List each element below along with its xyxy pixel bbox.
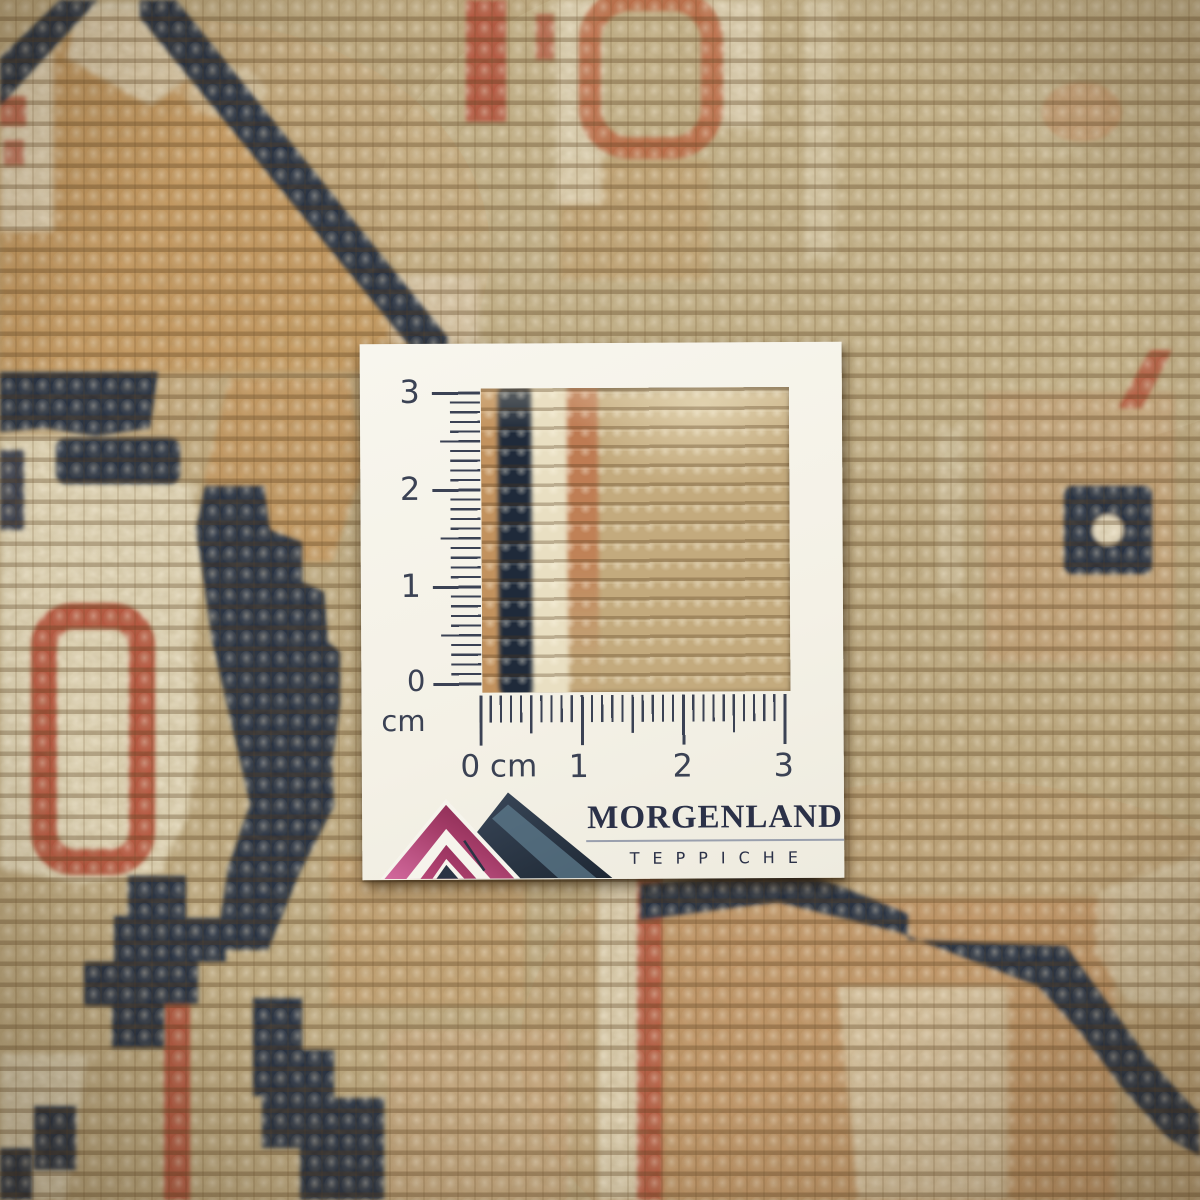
brand-block: MORGENLAND TEPPICHE: [584, 800, 846, 868]
ruler-label: 2: [663, 745, 703, 785]
morgenland-logo-icon: [380, 792, 612, 879]
ruler-label: 1: [559, 746, 599, 786]
brand-name: MORGENLAND: [584, 800, 846, 835]
ruler-label: 3: [764, 745, 804, 785]
brand-subtitle: TEPPICHE: [584, 848, 846, 868]
ruler-label: 2: [380, 469, 420, 509]
cutout-window: [481, 387, 791, 693]
vertical-ruler-cm-ticks: [432, 392, 482, 688]
window-knot-texture: [481, 387, 791, 693]
ruler-label: 0 cm: [453, 746, 545, 786]
ruler-label: 0 cm: [361, 661, 425, 741]
brand-divider: [586, 839, 844, 842]
rug-photo-scene: 3 2 1 0 cm 0 cm 1 2 3: [0, 0, 1200, 1200]
measure-card: 3 2 1 0 cm 0 cm 1 2 3: [360, 342, 845, 881]
ruler-label: 3: [380, 372, 420, 412]
ruler-label: 1: [381, 566, 421, 606]
horizontal-ruler-cm-ticks: [479, 694, 789, 746]
